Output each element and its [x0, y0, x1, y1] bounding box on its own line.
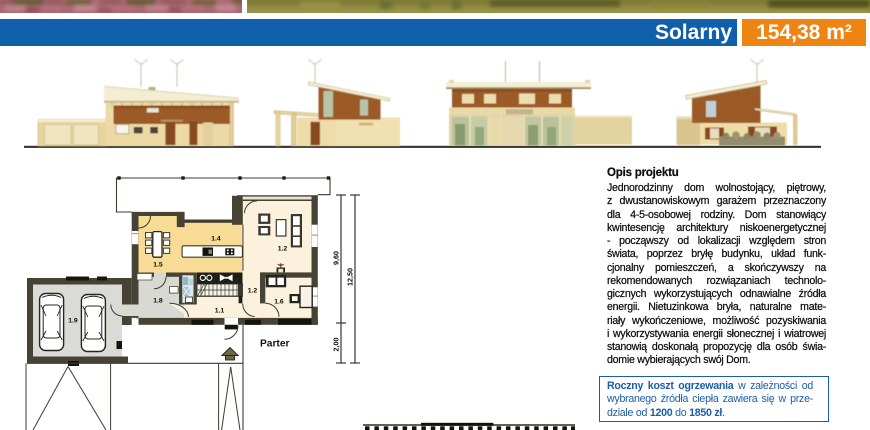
svg-text:1.4: 1.4	[211, 236, 221, 243]
svg-text:1.9: 1.9	[68, 318, 78, 325]
svg-text:12,50: 12,50	[346, 268, 355, 286]
svg-text:2,00: 2,00	[332, 338, 341, 352]
svg-text:9,60: 9,60	[332, 251, 341, 265]
svg-text:1.2: 1.2	[278, 246, 288, 253]
svg-text:Parter: Parter	[260, 339, 289, 350]
svg-text:1.1: 1.1	[215, 308, 225, 315]
svg-text:1.2: 1.2	[248, 288, 258, 295]
svg-text:1.5: 1.5	[153, 262, 163, 269]
svg-text:1.8: 1.8	[153, 298, 163, 305]
svg-text:1.6: 1.6	[274, 299, 284, 306]
